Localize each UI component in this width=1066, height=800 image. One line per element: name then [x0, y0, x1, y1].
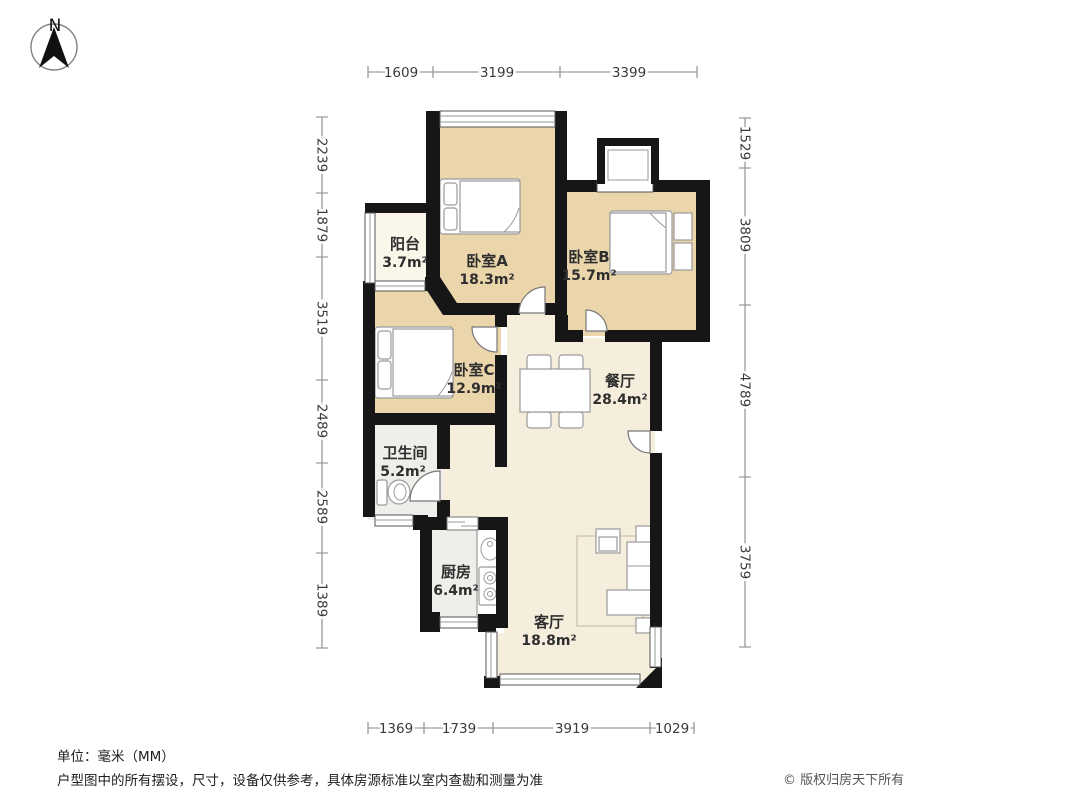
wall	[696, 180, 710, 342]
room-label-balcony: 阳台	[390, 235, 420, 253]
wall	[555, 111, 567, 315]
north-indicator: N	[31, 16, 77, 70]
room-label-kitchen: 厨房	[441, 563, 471, 581]
wall	[420, 612, 440, 632]
wall	[450, 303, 520, 315]
dim-label: 3759	[736, 545, 752, 579]
wall	[426, 111, 440, 279]
wall	[365, 203, 440, 213]
dim-label: 3809	[736, 218, 752, 252]
room-area-living: 18.8m²	[521, 633, 576, 649]
wall	[363, 413, 507, 425]
room-area-bedroom-c: 12.9m²	[446, 381, 501, 397]
wall	[420, 517, 432, 627]
wall	[478, 517, 508, 530]
window-band	[440, 617, 478, 628]
dim-label: 3919	[555, 721, 589, 737]
wall	[437, 425, 450, 469]
bed-icon	[375, 327, 453, 398]
floorplan-canvas: 阳台 3.7m² 卧室A 18.3m² 卧室B 15.7m² 卧室C 12.9m…	[0, 0, 1066, 800]
bed-icon	[610, 211, 692, 274]
bed-icon	[440, 179, 520, 234]
window-band	[486, 632, 497, 678]
dim-label: 1609	[384, 65, 418, 81]
room-label-bedroom-a: 卧室A	[466, 252, 508, 270]
room-label-bedroom-b: 卧室B	[568, 248, 609, 266]
window-band	[365, 213, 375, 283]
dim-label: 1879	[313, 208, 329, 242]
toilet-icon	[377, 480, 410, 505]
room-area-bedroom-b: 15.7m²	[561, 268, 616, 284]
dim-bottom: 1369 1739 3919 1029	[368, 721, 694, 737]
room-label-bathroom: 卫生间	[382, 444, 427, 462]
window-band	[650, 627, 661, 667]
wall	[495, 315, 507, 327]
dim-label: 2239	[313, 138, 329, 172]
window-band	[500, 674, 640, 685]
floorplan-page: 阳台 3.7m² 卧室A 18.3m² 卧室B 15.7m² 卧室C 12.9m…	[0, 0, 1066, 800]
footer: 单位：毫米（MM） 户型图中的所有摆设，尺寸，设备仅供参考，具体房源标准以室内查…	[57, 748, 904, 789]
room-label-living: 客厅	[533, 613, 564, 631]
wall	[650, 342, 662, 431]
wall	[363, 281, 375, 517]
wall	[650, 453, 662, 627]
room-area-balcony: 3.7m²	[382, 255, 428, 271]
dim-label: 1369	[379, 721, 413, 737]
north-arrow-icon	[39, 27, 69, 68]
dim-label: 1529	[736, 126, 752, 160]
disclaimer-text: 户型图中的所有摆设，尺寸，设备仅供参考，具体房源标准以室内查勘和测量为准	[57, 772, 543, 789]
dim-right: 1529 3809 4789 3759	[736, 118, 752, 647]
wall	[545, 303, 567, 315]
wall	[478, 614, 496, 632]
room-area-kitchen: 6.4m²	[433, 583, 479, 599]
room-area-dining: 28.4m²	[592, 392, 647, 408]
wall	[555, 330, 583, 342]
room-area-bedroom-a: 18.3m²	[459, 272, 514, 288]
dim-label: 2489	[313, 404, 329, 438]
copyright-text: © 版权归房天下所有	[783, 772, 904, 788]
wall	[495, 355, 507, 467]
dim-label: 1739	[442, 721, 476, 737]
room-area-bathroom: 5.2m²	[380, 464, 426, 480]
dim-left: 2239 1879 3519 2489 2589 1389	[313, 117, 329, 648]
wall	[605, 330, 710, 342]
wall	[437, 500, 450, 517]
dim-label: 1389	[313, 583, 329, 617]
dim-label: 2589	[313, 490, 329, 524]
window-band	[375, 515, 413, 526]
wall	[567, 180, 597, 192]
window-band	[440, 111, 555, 127]
dim-label: 3199	[480, 65, 514, 81]
dim-label: 1029	[655, 721, 689, 737]
room-label-dining: 餐厅	[605, 372, 635, 390]
room-label-bedroom-c: 卧室C	[453, 361, 494, 379]
dim-top: 1609 3199 3399	[368, 65, 697, 81]
dim-label: 4789	[736, 373, 752, 407]
bay-window	[597, 138, 659, 192]
dim-label: 3519	[313, 301, 329, 335]
window-band	[375, 281, 425, 291]
sliding-door	[447, 517, 478, 530]
unit-note: 单位：毫米（MM）	[57, 748, 175, 765]
wall	[496, 530, 508, 628]
dim-label: 3399	[612, 65, 646, 81]
